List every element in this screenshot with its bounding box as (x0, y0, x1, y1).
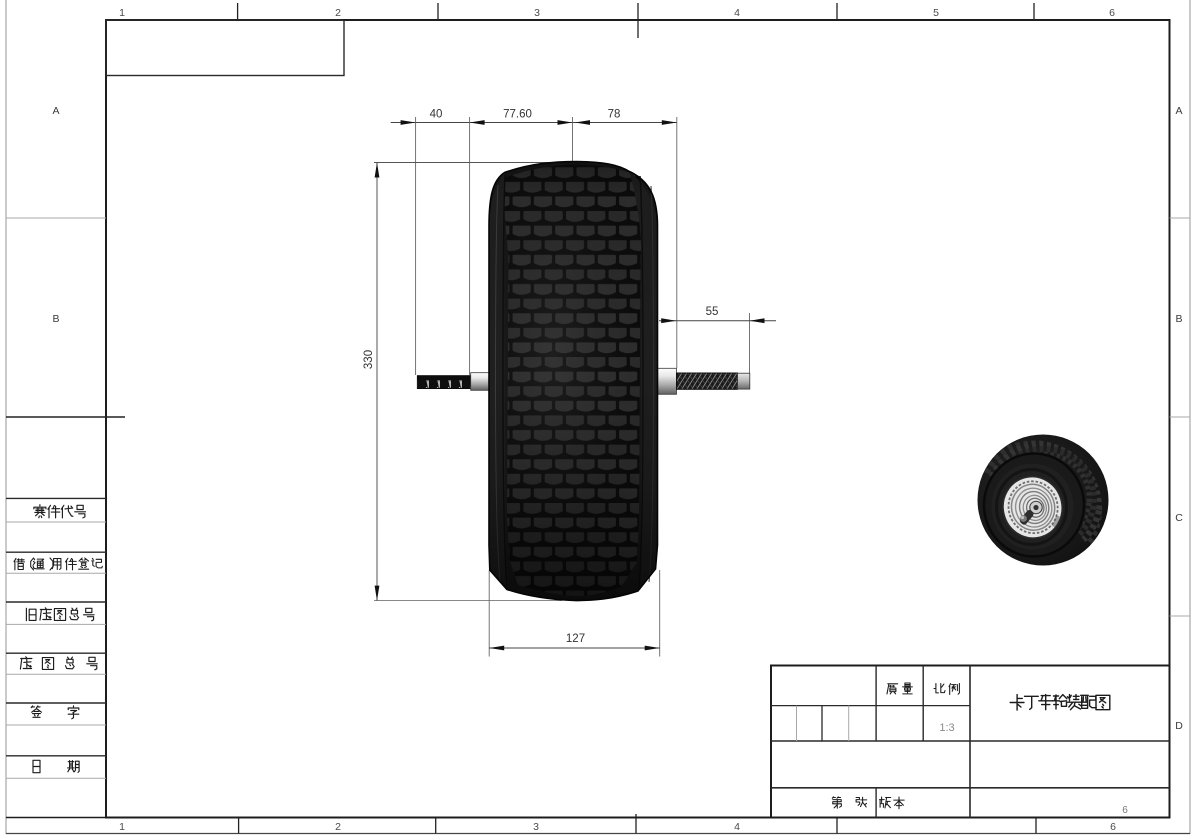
svg-text:B: B (1175, 313, 1182, 325)
svg-text:3: 3 (533, 821, 539, 833)
svg-text:6: 6 (1110, 821, 1116, 833)
svg-text:330: 330 (363, 350, 375, 369)
svg-text:2: 2 (335, 821, 341, 833)
svg-text:1: 1 (119, 821, 125, 833)
svg-text:6: 6 (1109, 7, 1115, 19)
svg-text:D: D (1175, 720, 1183, 732)
svg-text:1: 1 (119, 7, 125, 19)
svg-text:6: 6 (1122, 805, 1128, 816)
svg-text:127: 127 (566, 633, 585, 645)
svg-text:4: 4 (734, 821, 740, 833)
svg-text:1:3: 1:3 (939, 722, 954, 734)
svg-text:4: 4 (734, 7, 740, 19)
svg-text:2: 2 (335, 7, 341, 19)
svg-text:40: 40 (430, 109, 443, 121)
svg-text:B: B (52, 313, 59, 325)
svg-text:77.60: 77.60 (503, 109, 532, 121)
svg-text:55: 55 (706, 306, 719, 318)
svg-text:A: A (52, 105, 59, 117)
svg-text:5: 5 (933, 7, 939, 19)
svg-text:A: A (1175, 105, 1182, 117)
svg-text:3: 3 (534, 7, 540, 19)
svg-text:78: 78 (608, 109, 621, 121)
svg-text:C: C (1175, 512, 1183, 524)
